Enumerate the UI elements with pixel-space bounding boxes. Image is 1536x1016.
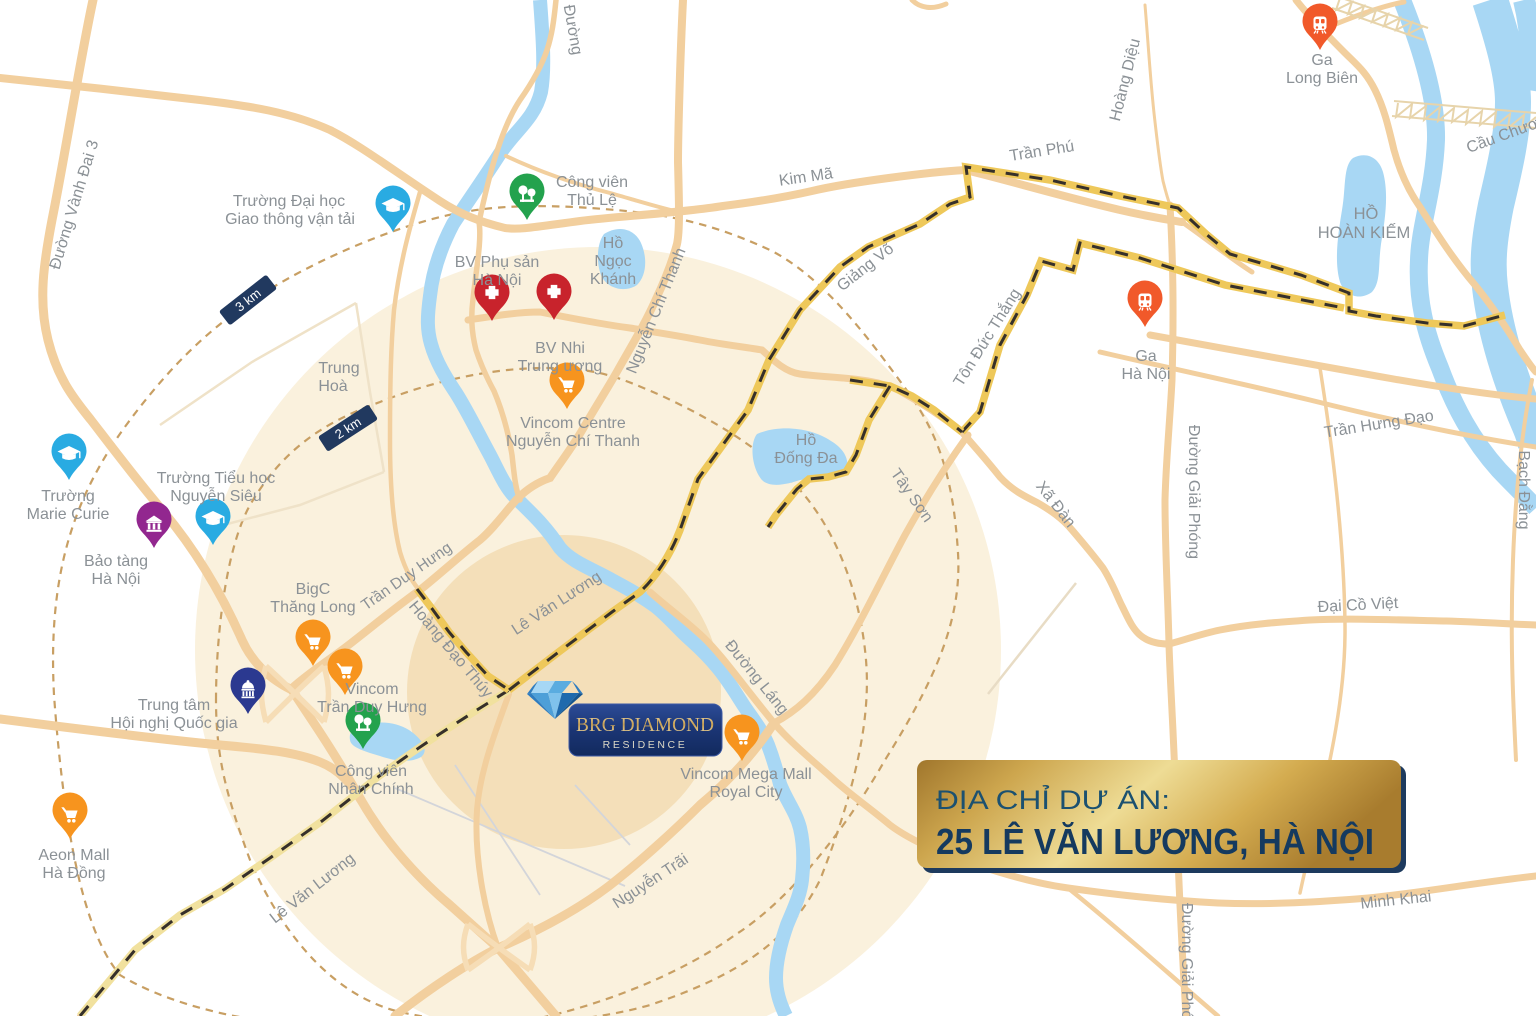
svg-text:BigC: BigC bbox=[296, 581, 331, 598]
svg-text:Đường Giải Phóng: Đường Giải Phóng bbox=[1185, 425, 1202, 559]
svg-text:Bảo tàng: Bảo tàng bbox=[84, 553, 148, 570]
svg-text:Trần Duy Hưng: Trần Duy Hưng bbox=[317, 699, 427, 716]
svg-text:Thủ Lệ: Thủ Lệ bbox=[567, 192, 617, 209]
svg-text:RESIDENCE: RESIDENCE bbox=[603, 739, 688, 751]
svg-text:Long Biên: Long Biên bbox=[1286, 70, 1358, 87]
svg-text:Hoà: Hoà bbox=[318, 378, 347, 395]
svg-text:Trung ương: Trung ương bbox=[518, 358, 603, 375]
svg-text:BV Nhi: BV Nhi bbox=[535, 340, 585, 357]
svg-text:Trường Đại học: Trường Đại học bbox=[233, 193, 345, 210]
svg-text:25 LÊ VĂN LƯƠNG, HÀ NỘI: 25 LÊ VĂN LƯƠNG, HÀ NỘI bbox=[936, 820, 1374, 862]
svg-text:Aeon Mall: Aeon Mall bbox=[38, 847, 109, 864]
svg-text:Đống Đa: Đống Đa bbox=[774, 450, 837, 467]
svg-text:Ga: Ga bbox=[1311, 52, 1332, 69]
svg-text:Hà Đồng: Hà Đồng bbox=[42, 865, 105, 882]
svg-text:Vincom: Vincom bbox=[345, 681, 398, 698]
svg-text:Hà Nội: Hà Nội bbox=[1122, 366, 1171, 383]
svg-text:Vincom Mega Mall: Vincom Mega Mall bbox=[680, 766, 811, 783]
svg-text:HỒ: HỒ bbox=[1354, 204, 1379, 223]
svg-text:Bạch Đằng: Bạch Đằng bbox=[1515, 450, 1534, 529]
svg-text:ĐỊA CHỈ DỰ ÁN:: ĐỊA CHỈ DỰ ÁN: bbox=[936, 783, 1170, 815]
svg-text:Hồ: Hồ bbox=[603, 235, 624, 252]
svg-text:Khánh: Khánh bbox=[590, 271, 636, 288]
svg-text:BRG DIAMOND: BRG DIAMOND bbox=[576, 715, 714, 736]
svg-text:Trung: Trung bbox=[318, 360, 359, 377]
svg-text:Marie Curie: Marie Curie bbox=[27, 506, 110, 523]
svg-text:Công viên: Công viên bbox=[335, 763, 407, 780]
svg-text:Ngọc: Ngọc bbox=[594, 253, 631, 270]
svg-text:Vincom Centre: Vincom Centre bbox=[520, 415, 626, 432]
svg-text:Nguyễn Chí Thanh: Nguyễn Chí Thanh bbox=[506, 431, 640, 450]
svg-text:Hà Nội: Hà Nội bbox=[473, 272, 522, 289]
svg-text:Royal City: Royal City bbox=[710, 784, 783, 801]
svg-text:Đường Giải Phóng: Đường Giải Phóng bbox=[1178, 903, 1195, 1016]
svg-text:Hà Nội: Hà Nội bbox=[92, 571, 141, 588]
svg-text:BV Phụ sản: BV Phụ sản bbox=[455, 254, 540, 271]
svg-text:Ga: Ga bbox=[1135, 348, 1156, 365]
svg-text:HOÀN KIẾM: HOÀN KIẾM bbox=[1318, 223, 1411, 242]
svg-text:Nhân Chính: Nhân Chính bbox=[328, 781, 413, 798]
svg-text:Trường: Trường bbox=[41, 488, 95, 505]
svg-text:Trường Tiểu học: Trường Tiểu học bbox=[157, 469, 275, 487]
svg-text:Giao thông vận tải: Giao thông vận tải bbox=[225, 211, 355, 228]
svg-text:Nguyễn Siêu: Nguyễn Siêu bbox=[170, 486, 262, 505]
svg-text:Thăng Long: Thăng Long bbox=[270, 599, 355, 616]
svg-text:Hồ: Hồ bbox=[796, 432, 817, 449]
svg-text:Công viên: Công viên bbox=[556, 174, 628, 191]
svg-text:Trung tâm: Trung tâm bbox=[138, 697, 210, 714]
svg-text:Hội nghị Quốc gia: Hội nghị Quốc gia bbox=[110, 715, 237, 732]
